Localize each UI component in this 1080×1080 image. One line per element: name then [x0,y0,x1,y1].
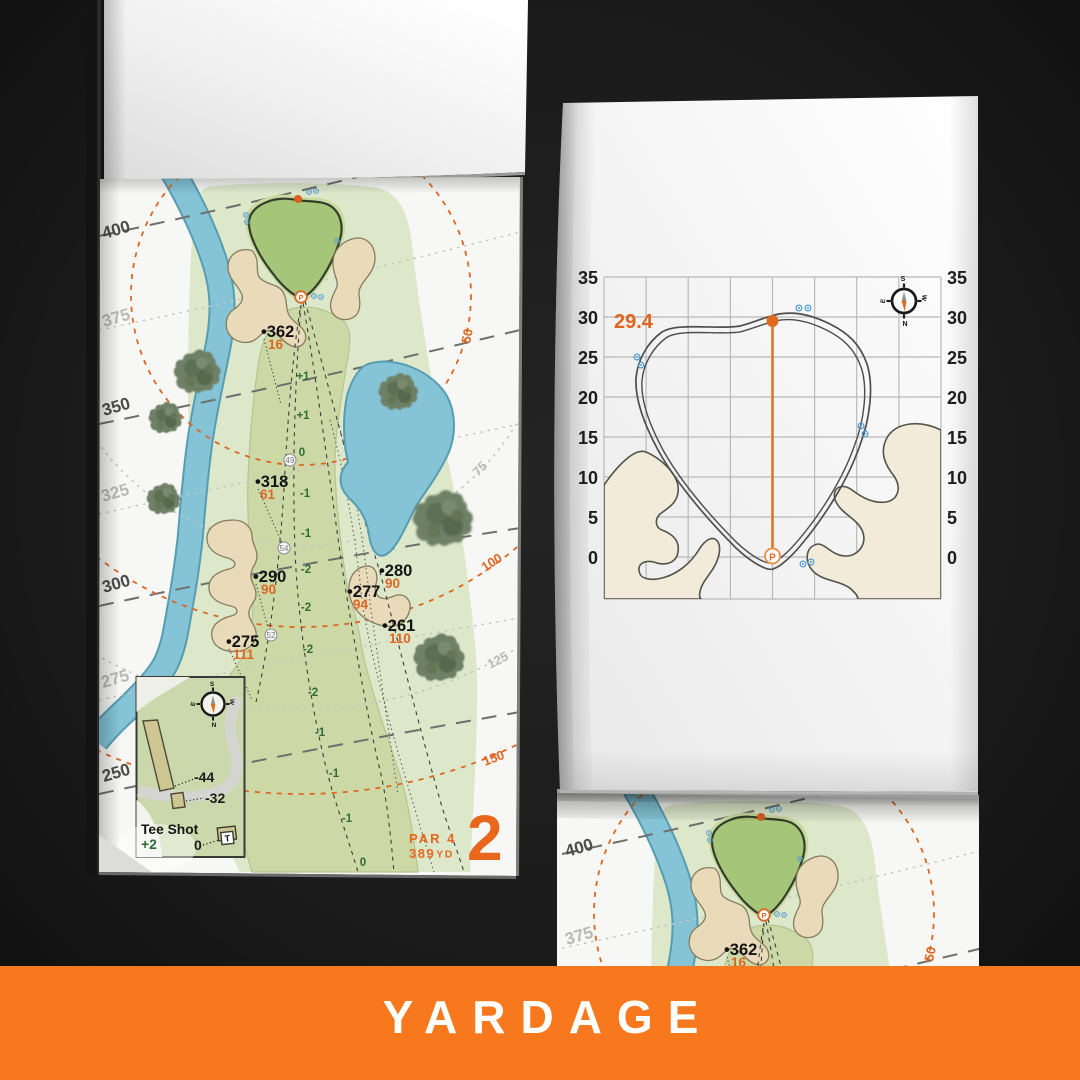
svg-text:S: S [901,276,906,283]
svg-text:15: 15 [947,428,967,448]
svg-text:P: P [769,553,776,564]
svg-text:5: 5 [588,508,598,528]
svg-text:YARDAGE: YARDAGE [383,991,714,1043]
svg-text:20: 20 [578,388,598,408]
svg-text:25: 25 [578,348,598,368]
svg-text:35: 35 [947,268,967,288]
svg-text:10: 10 [947,468,967,488]
svg-text:0: 0 [588,548,598,568]
svg-text:30: 30 [578,308,598,328]
svg-text:29.4: 29.4 [614,311,654,333]
svg-text:35: 35 [578,268,598,288]
svg-text:5: 5 [947,508,957,528]
svg-text:30: 30 [947,308,967,328]
svg-text:25: 25 [947,348,967,368]
svg-text:N: N [902,321,907,328]
svg-text:15: 15 [578,428,598,448]
svg-text:20: 20 [947,388,967,408]
svg-text:10: 10 [578,468,598,488]
svg-text:0: 0 [947,548,957,568]
